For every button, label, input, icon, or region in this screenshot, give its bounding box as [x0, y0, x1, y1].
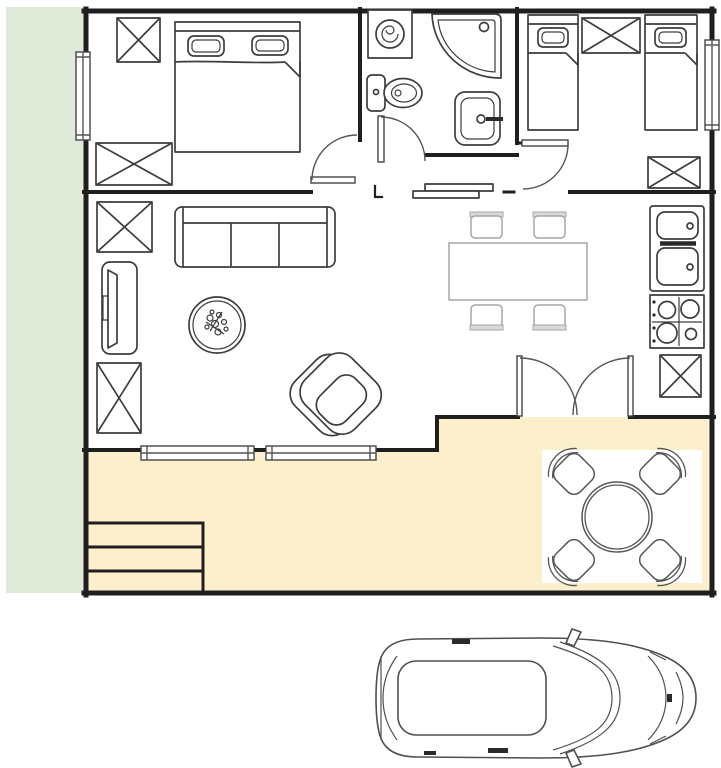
double-sink-counter	[650, 206, 704, 291]
garden-strip	[6, 7, 84, 593]
double-bed	[175, 22, 300, 152]
window-bedroom-right	[705, 40, 719, 130]
wardrobe-box-bedroom-left-bottom	[96, 143, 172, 185]
three-seat-sofa	[175, 207, 335, 267]
wardrobe-box-bedroom-left-top	[117, 18, 160, 62]
dining-chair	[533, 212, 566, 238]
floor-plan-canvas	[0, 0, 721, 768]
dining-chair	[533, 305, 566, 330]
corner-shower	[432, 14, 501, 78]
armchair	[283, 341, 389, 447]
car-emblem-icon	[667, 694, 672, 702]
single-bed-left	[528, 15, 578, 130]
wardrobe-box-living-left	[97, 363, 141, 433]
wardrobe-box-kitchen	[660, 355, 701, 397]
gas-hob	[650, 295, 704, 348]
dining-chair	[470, 212, 503, 238]
floor-plan-page	[0, 0, 721, 768]
window-living-1	[141, 446, 254, 460]
car-roof-panel	[398, 661, 546, 735]
wardrobe-box-bedroom-right-top	[582, 18, 640, 53]
door-bedroom-left	[311, 135, 357, 183]
garden-table	[582, 482, 652, 552]
dining-table	[449, 243, 587, 300]
wash-basin	[455, 92, 503, 145]
toilet	[367, 75, 422, 111]
window-living-2	[266, 446, 376, 460]
wardrobe-box-bedroom-right-bottom	[648, 157, 700, 188]
round-plant-table	[189, 297, 245, 353]
tv-cabinet	[102, 262, 137, 354]
window-bedroom-left	[76, 52, 90, 140]
shoe-bench	[413, 184, 493, 198]
door-bathroom	[378, 116, 425, 162]
washing-machine	[368, 10, 412, 58]
dining-set	[449, 212, 587, 330]
wardrobe-box-living-top	[97, 202, 152, 252]
dining-chair	[470, 305, 503, 330]
french-double-door	[517, 356, 633, 416]
door-bedroom-right	[522, 140, 568, 189]
single-bed-right	[645, 15, 697, 130]
car-top-view	[376, 629, 696, 767]
